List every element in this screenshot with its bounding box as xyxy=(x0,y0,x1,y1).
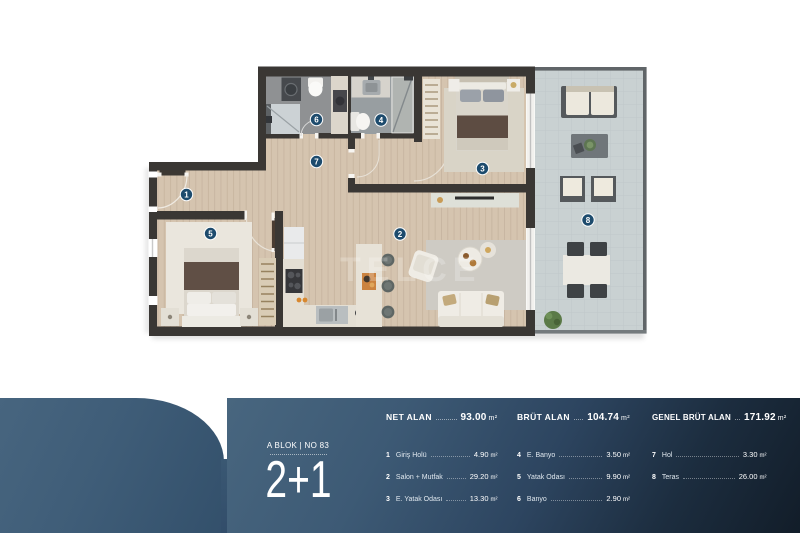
svg-text:7: 7 xyxy=(314,157,319,166)
svg-text:2: 2 xyxy=(398,230,403,239)
svg-text:TELCE: TELCE xyxy=(340,251,481,289)
svg-text:5: 5 xyxy=(208,229,213,238)
svg-text:6: 6 xyxy=(314,115,319,124)
svg-text:1: 1 xyxy=(184,190,189,199)
svg-text:8: 8 xyxy=(586,216,591,225)
svg-text:3: 3 xyxy=(480,164,485,173)
svg-text:4: 4 xyxy=(379,116,384,125)
